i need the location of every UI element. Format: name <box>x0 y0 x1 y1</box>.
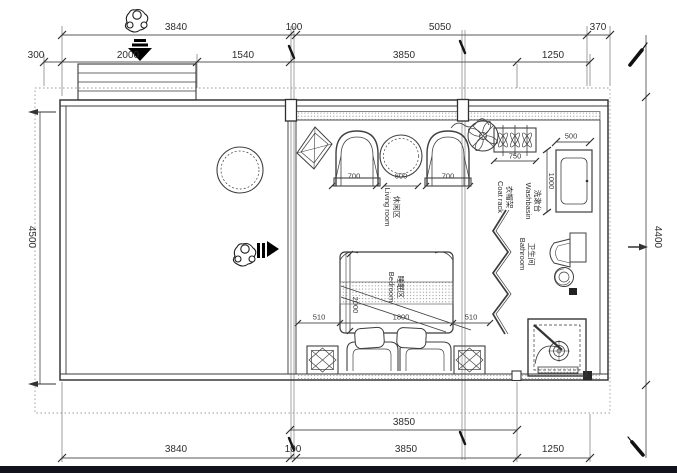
wall-mirror-decor <box>297 127 332 169</box>
room-label-bedroom-en: Bedroom <box>387 272 396 302</box>
room-label-living-zh: 休闲区 <box>392 188 401 227</box>
page-bottom-border <box>0 466 677 473</box>
dim-top-370: 370 <box>590 23 607 33</box>
room-label-washbasin-en: Washbasin <box>524 183 533 220</box>
dim-top2-1250: 1250 <box>542 51 564 61</box>
dim-armchair-right: 700 <box>442 172 455 180</box>
dim-armchair-left: 700 <box>348 172 361 180</box>
dim-coat-rack: 750 <box>509 152 522 160</box>
dim-bed-gap-right: 510 <box>465 313 478 321</box>
dim-bottom2-3850: 3850 <box>395 445 417 455</box>
shower-icon <box>528 319 586 376</box>
room-label-bathroom-en: Bathroom <box>518 238 527 271</box>
wall-post <box>458 100 469 122</box>
dim-left-4500: 4500 <box>26 226 36 248</box>
window-band-top <box>296 112 600 121</box>
round-table <box>217 147 263 193</box>
nightstand-icon <box>454 346 485 374</box>
pillow <box>354 327 426 349</box>
dimension-ticks <box>40 31 650 462</box>
dim-bottom2-3840: 3840 <box>165 445 187 455</box>
dim-top2-3850: 3850 <box>393 51 415 61</box>
dimension-leader-arrows <box>28 109 648 387</box>
room-label-washbasin: 洗漱台 Washbasin <box>524 183 542 220</box>
dim-top2-2000: 2000 <box>117 51 139 61</box>
nightstand-icon <box>307 346 338 374</box>
room-label-coat-rack-zh: 衣帽架 <box>505 181 514 213</box>
room-label-bedroom-zh: 睡眠区 <box>396 272 405 302</box>
room-label-coat-rack: 衣帽架 Coat rack <box>496 181 514 213</box>
dim-top-5050: 5050 <box>429 23 451 33</box>
dim-bed-width: 1800 <box>393 313 410 321</box>
dim-tea-table: 600 <box>395 172 408 180</box>
dim-top-3840: 3840 <box>165 23 187 33</box>
dim-washbasin-w: 500 <box>565 132 578 140</box>
stairs <box>78 64 196 100</box>
washbasin-icon <box>556 150 592 212</box>
wall-post <box>286 100 297 122</box>
person-icon <box>233 244 255 267</box>
dim-bed-gap-left: 510 <box>313 313 326 321</box>
wall-post <box>512 371 521 381</box>
folding-partition <box>493 210 511 334</box>
dim-bottom2-100: 100 <box>285 445 302 455</box>
room-label-bedroom: 睡眠区 Bedroom <box>387 272 405 302</box>
toilet-icon <box>550 233 586 295</box>
dim-top-100: 100 <box>286 23 303 33</box>
dim-bottom2-1250: 1250 <box>542 445 564 455</box>
floor-plan-linework <box>0 0 677 473</box>
dim-right-4400: 4400 <box>652 226 662 248</box>
room-label-coat-rack-en: Coat rack <box>496 181 505 213</box>
dim-top2-300: 300 <box>28 51 45 61</box>
dim-bed-length: 2000 <box>351 297 359 314</box>
dimension-lines <box>40 35 646 458</box>
dim-bottom1-3850: 3850 <box>393 418 415 428</box>
floor-plan: 3840 100 5050 370 300 2000 1540 3850 125… <box>0 0 677 473</box>
room-label-living: 休闲区 Living room <box>383 188 401 227</box>
room-label-living-en: Living room <box>383 188 392 227</box>
grid-break-marks <box>289 41 465 450</box>
dim-top2-1540: 1540 <box>232 51 254 61</box>
room-label-bathroom-zh: 卫生间 <box>527 238 536 271</box>
ceiling-fan-icon <box>451 119 499 152</box>
door-arrow-right-icon <box>257 241 279 258</box>
room-label-washbasin-zh: 洗漱台 <box>533 183 542 220</box>
room-label-bathroom: 卫生间 Bathroom <box>518 238 536 271</box>
annotation-pen-mark <box>628 43 647 455</box>
dim-washbasin-d: 1000 <box>547 173 555 190</box>
person-icon <box>125 10 147 33</box>
